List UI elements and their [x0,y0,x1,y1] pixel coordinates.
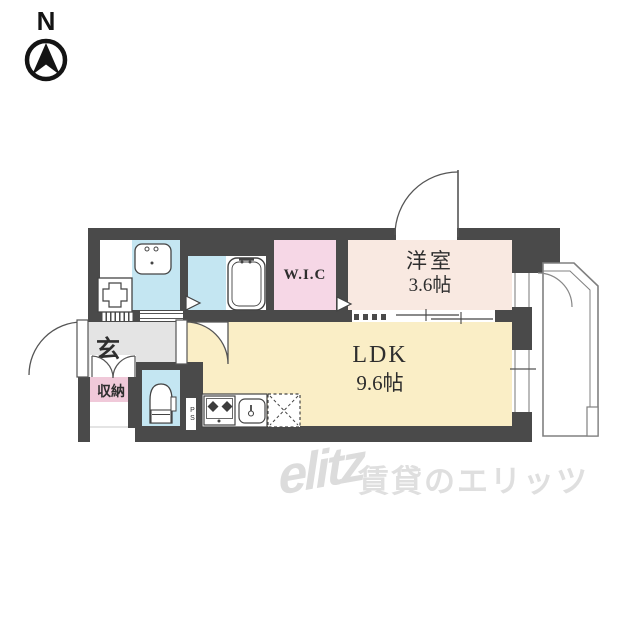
wall-segment [183,240,268,256]
washing-machine-pan-icon [98,278,132,312]
watermark: elitz 賃貸のエリッツ [270,442,610,532]
bathroom-floor [188,256,226,310]
watermark-logo: elitz [278,432,365,508]
western-room-label: 洋室 3.6帖 [348,248,512,298]
top-door-opening [396,228,457,240]
storage-lower-area [88,402,128,426]
washroom-floor [132,240,180,310]
western-room-door [395,170,458,237]
pipe-space-label: PS [186,401,196,429]
wic-label: W.I.C [274,267,336,284]
sliding-door-opening [392,312,495,322]
entrance-label: 玄 [88,329,128,364]
balcony-label: バルコニー [550,281,574,439]
watermark-text: 賃貸のエリッツ [358,456,589,501]
wall-segment [180,240,188,316]
wall-segment [88,228,560,240]
closet-dash-strip [352,312,392,322]
compass-icon [27,41,65,79]
wall-segment [336,240,348,316]
western-room-size: 3.6帖 [348,274,512,298]
western-room-window [512,273,532,307]
western-room-name: 洋室 [348,248,512,274]
toilet-floor [142,370,180,426]
wall-segment [512,228,560,273]
ldk-name: LDK [230,340,530,370]
dash-pattern [354,314,390,320]
floorplan-page: elitz 賃貸のエリッツ [0,0,640,640]
entrance-step-hatch [101,311,134,321]
compass-label: N [30,6,62,37]
storage-label: 収納 [84,381,138,401]
wall-segment [88,228,100,322]
ldk-size: 9.6帖 [230,370,530,396]
ldk-label: LDK 9.6帖 [230,340,530,396]
wall-segment [266,240,274,316]
washroom-door-opening [140,311,183,321]
bathtub-icon [228,258,265,310]
entrance-door [29,320,88,377]
